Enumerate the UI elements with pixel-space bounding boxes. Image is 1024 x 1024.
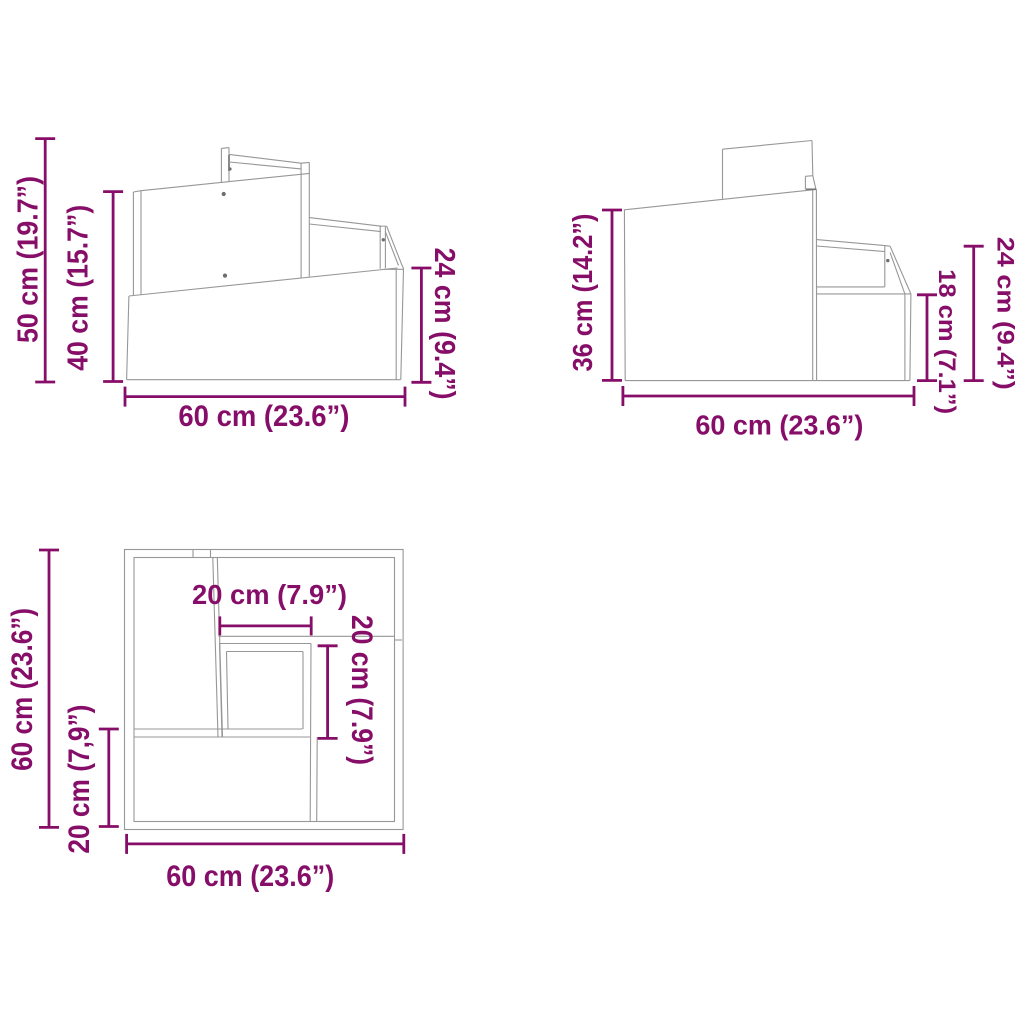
svg-text:60 cm (23.6”): 60 cm (23.6”): [178, 400, 349, 433]
svg-text:24 cm (9.4”): 24 cm (9.4”): [991, 237, 1018, 390]
svg-text:60 cm (23.6”): 60 cm (23.6”): [6, 608, 39, 771]
svg-text:20 cm (7.9”): 20 cm (7.9”): [192, 579, 347, 610]
svg-text:60 cm (23.6”): 60 cm (23.6”): [166, 860, 334, 893]
svg-text:36 cm (14.2”): 36 cm (14.2”): [567, 214, 598, 372]
svg-text:20 cm (7,9”): 20 cm (7,9”): [63, 705, 96, 854]
svg-text:20 cm (7.9”): 20 cm (7.9”): [345, 615, 378, 765]
svg-text:18 cm (7.1”): 18 cm (7.1”): [933, 269, 960, 414]
svg-text:24 cm (9.4”): 24 cm (9.4”): [428, 248, 460, 400]
svg-text:40 cm (15.7”): 40 cm (15.7”): [63, 205, 95, 371]
svg-text:50 cm (19.7”): 50 cm (19.7”): [12, 176, 44, 343]
svg-text:60 cm (23.6”): 60 cm (23.6”): [695, 410, 863, 441]
